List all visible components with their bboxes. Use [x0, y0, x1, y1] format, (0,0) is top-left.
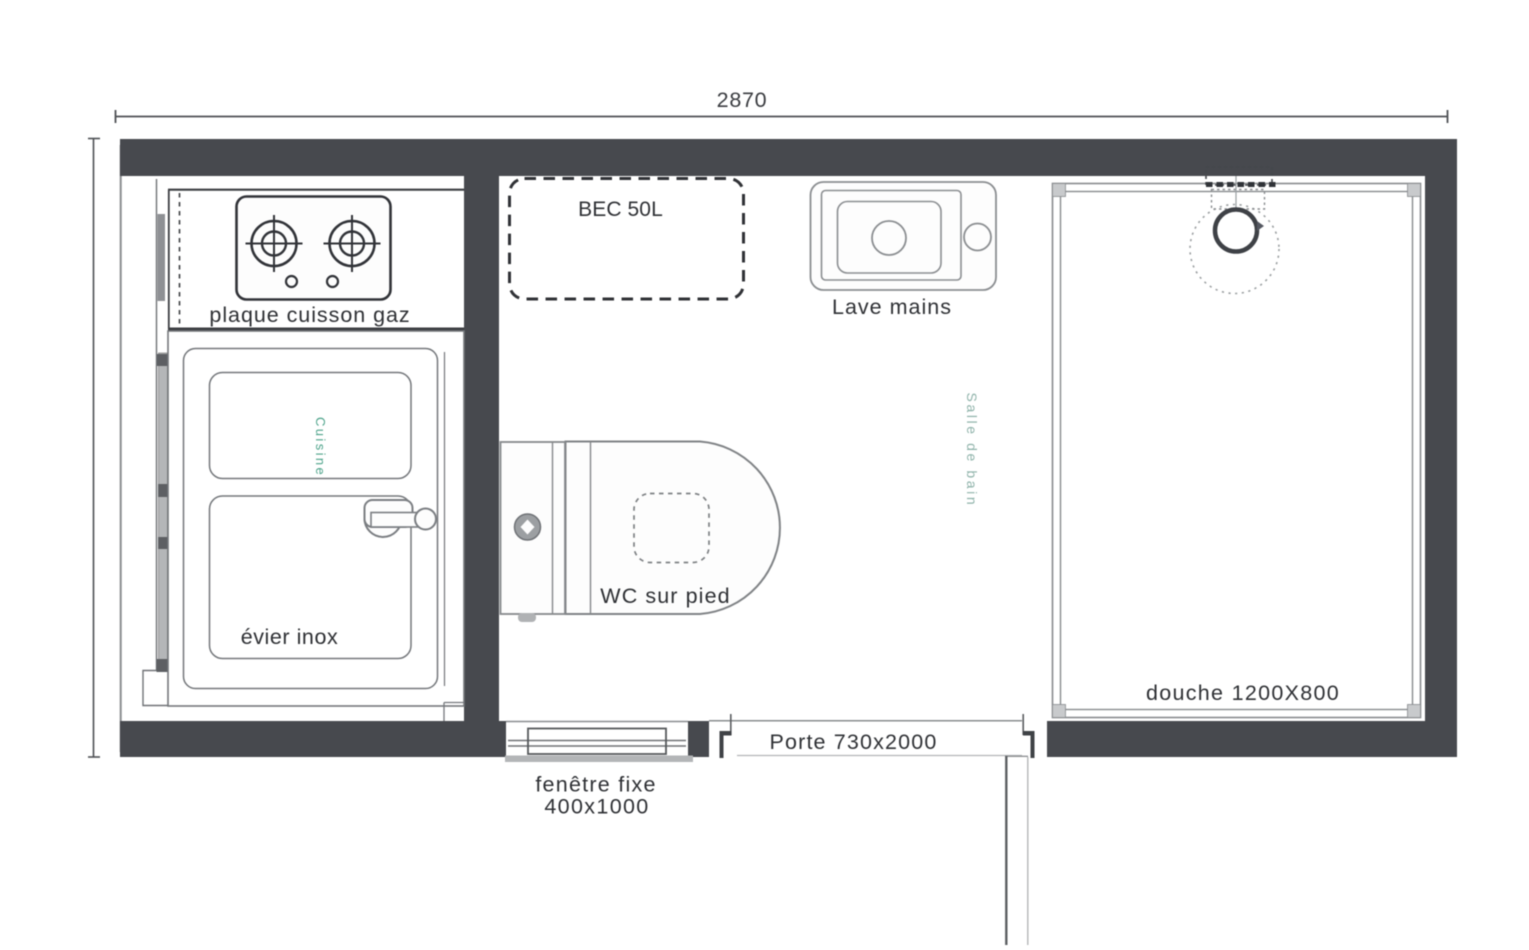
- svg-text:Porte 730x2000: Porte 730x2000: [770, 730, 938, 754]
- svg-text:Salle de bain: Salle de bain: [964, 393, 980, 508]
- svg-text:douche 1200X800: douche 1200X800: [1146, 681, 1340, 705]
- svg-text:évier inox: évier inox: [241, 625, 339, 649]
- svg-text:fenêtre fixe: fenêtre fixe: [535, 773, 656, 797]
- svg-text:2870: 2870: [717, 88, 768, 112]
- svg-text:plaque cuisson gaz: plaque cuisson gaz: [209, 303, 410, 327]
- svg-text:BEC 50L: BEC 50L: [578, 198, 663, 221]
- svg-text:Cuisine: Cuisine: [313, 417, 328, 477]
- svg-text:400x1000: 400x1000: [544, 795, 649, 819]
- svg-text:WC sur pied: WC sur pied: [600, 584, 730, 608]
- svg-text:Lave mains: Lave mains: [832, 295, 952, 319]
